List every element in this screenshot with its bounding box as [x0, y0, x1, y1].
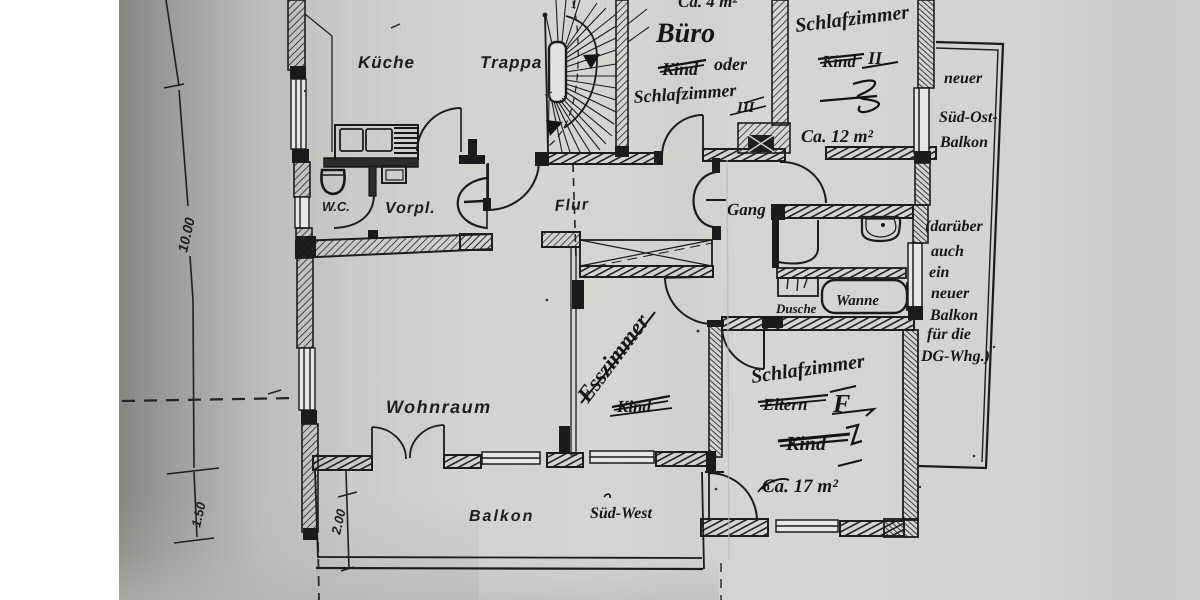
svg-text:Süd-Ost-: Süd-Ost- — [939, 109, 998, 126]
svg-text:neuer: neuer — [944, 70, 983, 87]
svg-text:Flur: Flur — [554, 196, 589, 215]
svg-text:Balkon: Balkon — [939, 134, 988, 151]
svg-text:Ca. 17 m²: Ca. 17 m² — [762, 476, 839, 497]
svg-text:Wohnraum: Wohnraum — [386, 397, 492, 417]
svg-text:DG-Whg.): DG-Whg.) — [920, 348, 990, 365]
svg-text:ein: ein — [929, 264, 950, 281]
svg-text:Büro: Büro — [655, 18, 715, 49]
svg-text:Ca. 4 m²: Ca. 4 m² — [678, 0, 738, 11]
svg-text:Gang: Gang — [727, 200, 766, 219]
svg-text:neuer: neuer — [931, 285, 970, 302]
svg-text:Wanne: Wanne — [836, 293, 879, 309]
svg-text:W.C.: W.C. — [322, 199, 350, 214]
svg-text:Ca. 12 m²: Ca. 12 m² — [801, 126, 874, 146]
svg-text:(darüber: (darüber — [925, 218, 984, 235]
svg-text:oder: oder — [714, 54, 748, 74]
svg-text:für die: für die — [927, 326, 971, 343]
svg-text:Balkon: Balkon — [929, 307, 978, 324]
svg-text:Dusche: Dusche — [775, 301, 817, 316]
svg-text:Süd-West: Süd-West — [590, 505, 652, 522]
svg-text:1: 1 — [571, 0, 577, 11]
svg-text:auch: auch — [931, 243, 964, 260]
svg-text:Balkon: Balkon — [469, 508, 534, 525]
svg-text:Vorpl.: Vorpl. — [385, 200, 436, 217]
svg-text:Trappa: Trappa — [480, 53, 542, 72]
svg-text:III: III — [736, 100, 756, 116]
svg-text:Küche: Küche — [358, 53, 415, 72]
